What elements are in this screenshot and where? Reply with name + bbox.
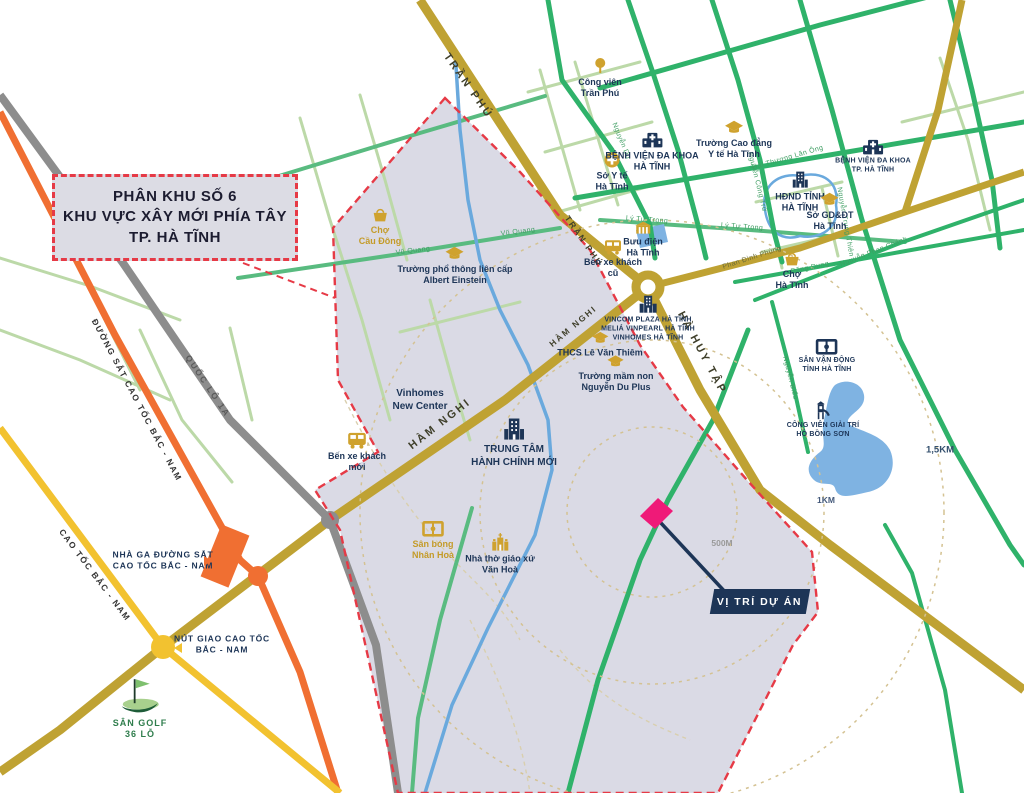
ring-label-500m: 500M	[711, 538, 732, 548]
poi-label: Công viên Trần Phú	[578, 77, 622, 100]
hospital-icon	[641, 131, 663, 148]
poi-nha-tho-giao-xu-van-hoa: Nhà thờ giáo xứ Văn Hoà	[465, 533, 534, 577]
title-box: PHÂN KHU SỐ 6 KHU VỰC XÂY MỚI PHÍA TÂY T…	[52, 174, 298, 261]
basket-icon	[372, 208, 389, 223]
poi-ben-xe-khach-moi: Bến xe khách mới	[328, 431, 386, 474]
bus-icon	[346, 431, 368, 449]
interchange-pointer-icon	[174, 643, 182, 653]
playground-icon	[813, 400, 833, 420]
poi-nha-ga-duong-sat: NHÀ GA ĐƯỜNG SẮT CAO TỐC BẮC - NAM	[113, 550, 214, 571]
poi-label: Bến xe khách cũ	[584, 257, 642, 280]
poi-trung-tam-hanh-chinh-moi: TRUNG TÂM HÀNH CHÍNH MỚI	[471, 417, 557, 469]
bus-icon	[603, 239, 623, 255]
graduation-cap-icon	[591, 331, 609, 346]
expressway-interchange	[151, 635, 175, 659]
poi-label: Sân bóng Nhân Hoà	[412, 539, 454, 562]
building-icon	[791, 171, 809, 190]
church-icon	[490, 533, 510, 552]
poi-label: Trường Cao đẳng Y tế Hà Tĩnh	[696, 138, 772, 161]
poi-nut-giao-cao-toc: NÚT GIAO CAO TỐC BẮC - NAM	[174, 634, 270, 655]
rail-junction	[248, 566, 268, 586]
stadium-icon	[816, 339, 838, 355]
basket-icon	[784, 252, 801, 267]
poi-label: SÂN VẬN ĐỘNG TỈNH HÀ TĨNH	[799, 357, 856, 375]
poi-label: Sở Y tế Hà Tĩnh	[596, 170, 629, 193]
golf-flag-icon	[119, 676, 161, 716]
ring-label-1-5km: 1,5KM	[926, 445, 954, 456]
title-line-3: TP. HÀ TĨNH	[63, 228, 287, 248]
graduation-cap-icon	[445, 246, 465, 262]
poi-ben-xe-khach-cu: Bến xe khách cũ	[584, 239, 642, 279]
poi-san-van-dong: SÂN VẬN ĐỘNG TỈNH HÀ TĨNH	[799, 339, 856, 375]
map-graphics	[0, 0, 1024, 793]
building-icon	[502, 417, 526, 442]
stadium-icon	[422, 521, 444, 537]
buildings-icon	[638, 295, 658, 315]
poi-cong-vien-giai-tri-ho-bong-son: CÔNG VIÊN GIẢI TRÍ HỒ BỒNG SƠN	[787, 400, 859, 440]
poi-truong-mam-non-nguyen-du-plus: Trường mầm non Nguyễn Du Plus	[579, 354, 654, 394]
poi-san-bong-nhan-hoa: Sân bóng Nhân Hoà	[412, 521, 454, 562]
post-office-icon	[634, 221, 652, 235]
poi-vinhomes-new-center: Vinhomes New Center	[392, 388, 447, 413]
poi-label: Chợ Hà Tĩnh	[776, 269, 809, 292]
poi-san-golf: SÂN GOLF 36 LỖ	[113, 676, 168, 741]
title-connector	[243, 263, 335, 298]
poi-truong-cao-dang-y-te: Trường Cao đẳng Y tế Hà Tĩnh	[696, 120, 772, 161]
poi-label: NHÀ GA ĐƯỜNG SẮT CAO TỐC BẮC - NAM	[113, 550, 214, 571]
poi-label: SÂN GOLF 36 LỖ	[113, 718, 168, 741]
poi-so-gd-dt: Sở GD&ĐT Hà Tĩnh	[807, 192, 854, 233]
poi-cho-cau-dong: Chợ Cầu Đông	[359, 208, 402, 248]
poi-label: Chợ Cầu Đông	[359, 225, 402, 248]
poi-benh-vien-da-khoa-ha-tinh: BỆNH VIỆN ĐA KHOA HÀ TĨNH	[605, 131, 698, 173]
graduation-cap-icon	[607, 354, 625, 369]
poi-cong-vien-tran-phu: Công viên Trần Phú	[578, 57, 622, 100]
ring-label-1km: 1KM	[817, 495, 835, 505]
poi-label: Sở GD&ĐT Hà Tĩnh	[807, 210, 854, 233]
poi-label: NÚT GIAO CAO TỐC BẮC - NAM	[174, 634, 270, 655]
poi-label: Trường mầm non Nguyễn Du Plus	[579, 371, 654, 394]
poi-label: Nhà thờ giáo xứ Văn Hoà	[465, 554, 534, 577]
poi-label: CÔNG VIÊN GIẢI TRÍ HỒ BỒNG SƠN	[787, 422, 859, 440]
poi-label: TRUNG TÂM HÀNH CHÍNH MỚI	[471, 444, 557, 469]
project-location-callout: VỊ TRÍ DỰ ÁN	[710, 589, 810, 614]
project-location-label: VỊ TRÍ DỰ ÁN	[717, 596, 802, 608]
poi-benh-vien-da-khoa-tp: BỆNH VIỆN ĐA KHOA TP. HÀ TĨNH	[835, 138, 911, 175]
poi-truong-albert-einstein: Trường phổ thông liên cấp Albert Einstei…	[398, 246, 513, 286]
tree-icon	[592, 57, 608, 75]
poi-cho-ha-tinh: Chợ Hà Tĩnh	[776, 252, 809, 292]
station-pointer-icon	[204, 556, 212, 566]
graduation-cap-icon	[820, 192, 840, 208]
poi-label: Vinhomes New Center	[392, 388, 447, 413]
poi-label: BỆNH VIỆN ĐA KHOA TP. HÀ TĨNH	[835, 157, 911, 175]
poi-label: Bến xe khách mới	[328, 451, 386, 474]
hospital-icon	[862, 138, 884, 155]
poi-label: BỆNH VIỆN ĐA KHOA HÀ TĨNH	[605, 150, 698, 173]
title-line-2: KHU VỰC XÂY MỚI PHÍA TÂY	[63, 207, 287, 227]
graduation-cap-icon	[724, 120, 744, 136]
poi-label: Trường phổ thông liên cấp Albert Einstei…	[398, 264, 513, 287]
map-canvas: PHÂN KHU SỐ 6 KHU VỰC XÂY MỚI PHÍA TÂY T…	[0, 0, 1024, 793]
title-line-1: PHÂN KHU SỐ 6	[63, 187, 287, 207]
